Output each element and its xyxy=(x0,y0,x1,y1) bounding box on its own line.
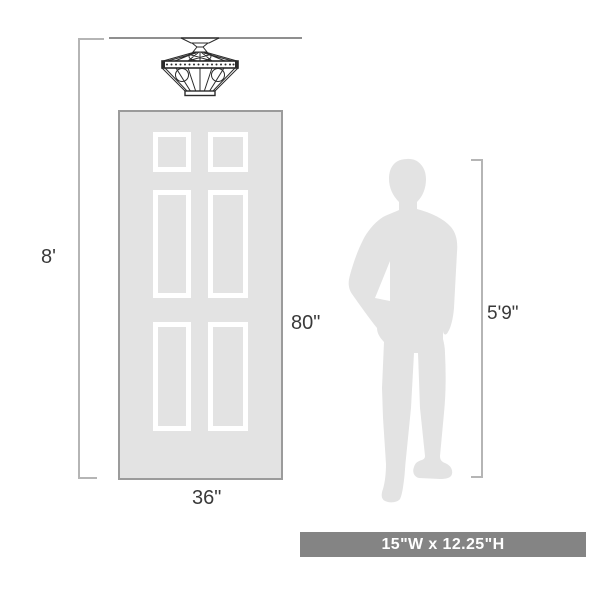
door-width-label: 36" xyxy=(192,488,221,508)
door-panel xyxy=(208,190,248,298)
door-panel xyxy=(208,132,248,172)
door-panel xyxy=(153,132,191,172)
room-height-bracket-tick-top xyxy=(78,38,104,40)
dimensions-banner-text: 15"W x 12.25"H xyxy=(381,536,504,554)
room-height-bracket-line xyxy=(78,38,80,479)
door-panel xyxy=(208,322,248,431)
door-panel xyxy=(153,322,191,431)
door-height-label: 80" xyxy=(291,313,320,333)
door-illustration xyxy=(118,110,283,480)
person-height-bracket-tick-bottom xyxy=(471,476,483,478)
room-height-bracket-tick-bottom xyxy=(78,477,97,479)
scale-diagram: 8' xyxy=(0,0,600,600)
light-fixture-drawing xyxy=(155,37,245,98)
dimensions-banner: 15"W x 12.25"H xyxy=(300,532,586,557)
door-panel xyxy=(153,190,191,298)
person-height-bracket-line xyxy=(481,159,483,478)
room-height-label: 8' xyxy=(41,247,56,267)
person-height-label: 5'9" xyxy=(487,304,519,323)
person-silhouette xyxy=(347,158,460,503)
